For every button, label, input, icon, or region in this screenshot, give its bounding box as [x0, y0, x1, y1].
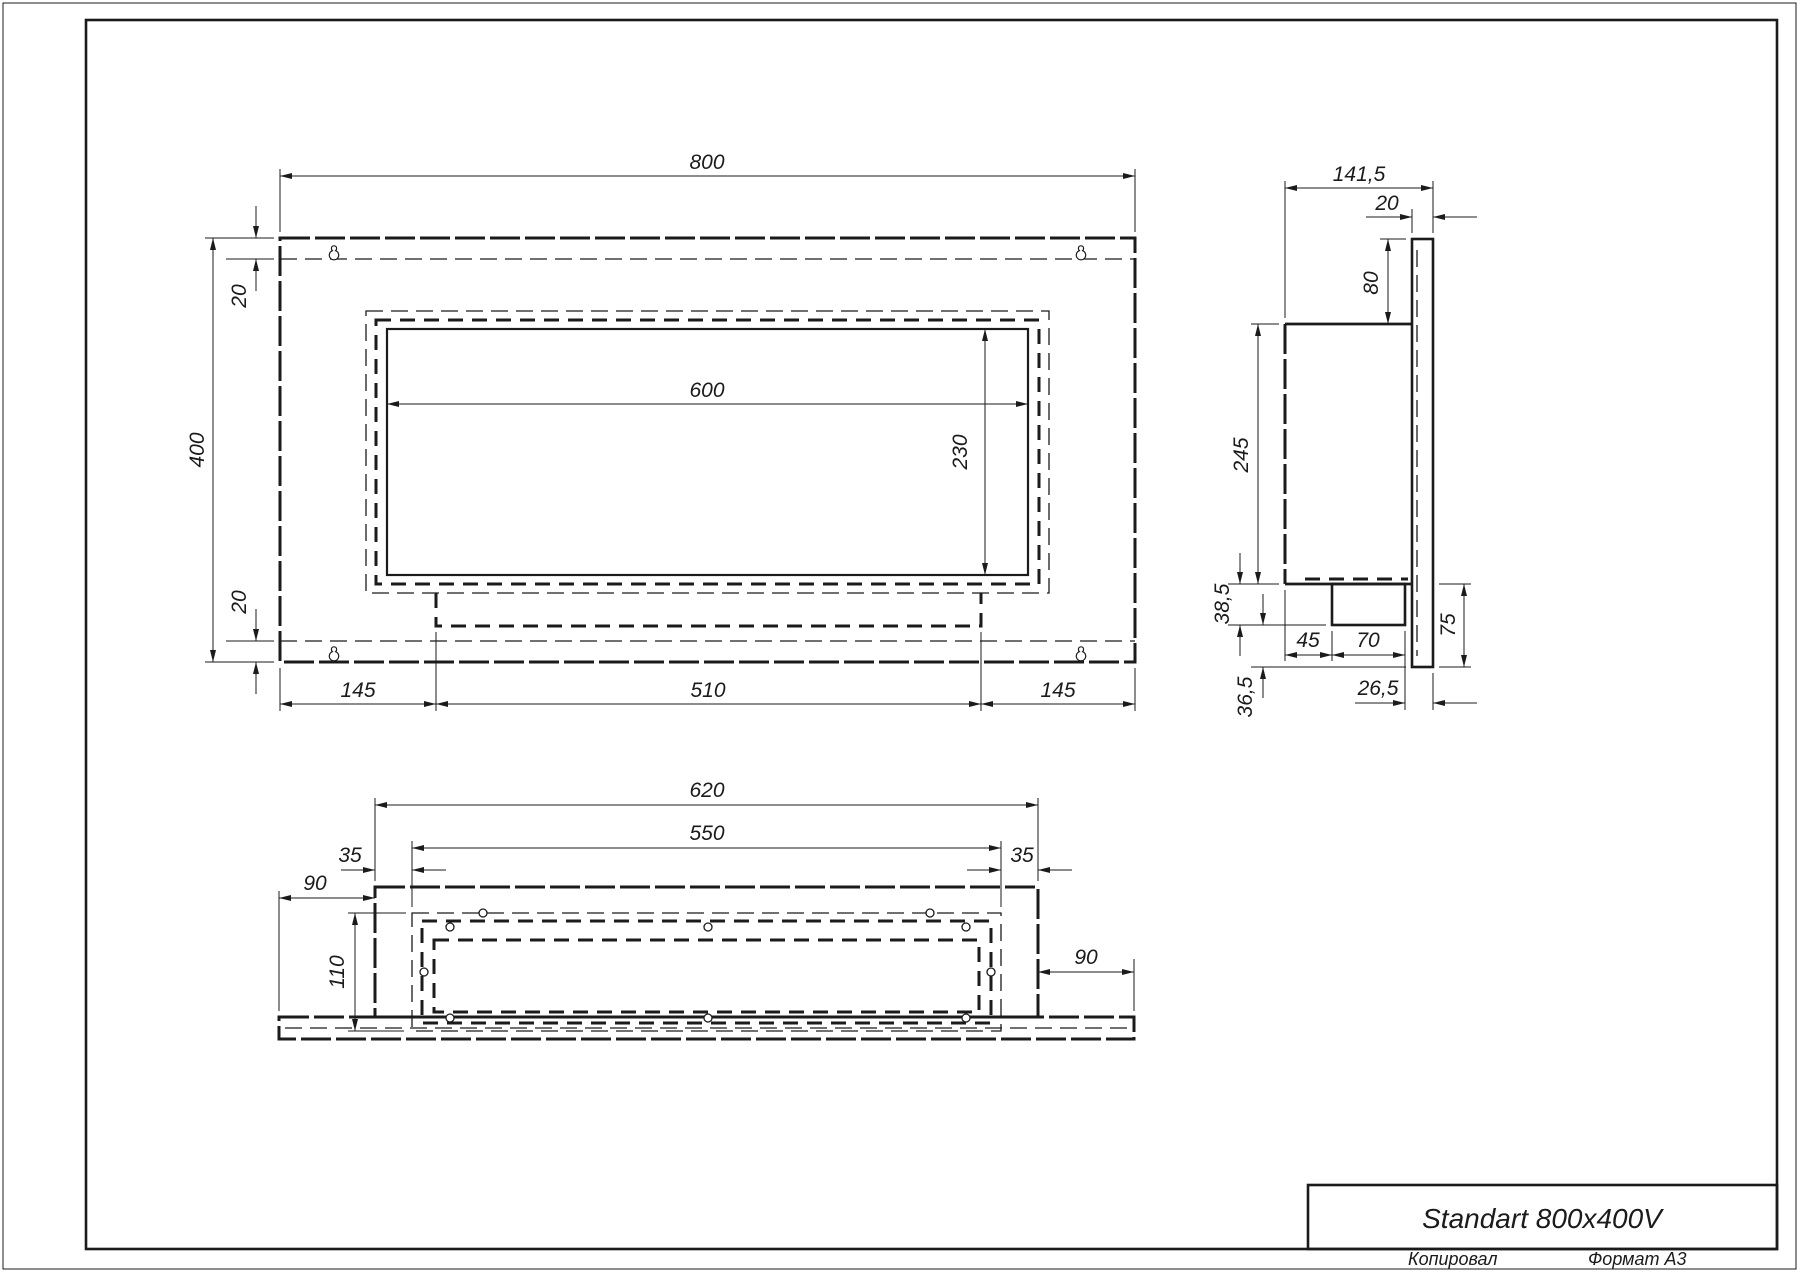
dim-label: 45 [1296, 629, 1320, 652]
dim-label: 35 [1010, 844, 1034, 867]
screw-hole [704, 923, 712, 931]
keyhole-icon [329, 647, 338, 661]
dim-front-opening-height: 230 [949, 329, 985, 575]
dim-side-plate-thickness: 20 [1366, 192, 1477, 233]
front-opening-hidden-frame [366, 311, 1049, 593]
front-opening [387, 329, 1028, 575]
screw-hole [962, 923, 970, 931]
front-burner-hidden [436, 593, 981, 626]
screw-hole [962, 1014, 970, 1022]
keyhole-icon [329, 246, 338, 260]
side-view: 141,5 20 80 245 38,5 36,5 [1211, 163, 1477, 717]
drawing-title: Standart 800x400V [1422, 1203, 1664, 1234]
screw-hole [479, 909, 487, 917]
sheet-footer: Копировал Формат А3 [1408, 1249, 1687, 1269]
dim-bottom-depth: 110 [326, 913, 406, 1031]
bottom-hidden-frame-inner [434, 940, 979, 1012]
screw-hole [446, 1014, 454, 1022]
dim-bottom-opening-width: 550 [412, 822, 1001, 907]
side-back-plate [1412, 239, 1433, 667]
copied-label: Копировал [1408, 1249, 1498, 1269]
title-block: Standart 800x400V [1308, 1185, 1777, 1249]
dim-label: 145 [340, 679, 375, 702]
keyhole-icon [1076, 246, 1085, 260]
dim-bottom-left-flange: 90 [279, 872, 375, 1011]
dim-label: 90 [303, 872, 327, 895]
page-frame [3, 3, 1796, 1269]
dim-front-bottom-margin: 20 [226, 590, 274, 694]
dim-label: 141,5 [1333, 163, 1386, 186]
dim-label: 230 [949, 434, 972, 470]
outer-border [3, 3, 1796, 1269]
dim-front-bottom-segments: 145 510 145 [280, 632, 1135, 711]
dim-label: 26,5 [1357, 677, 1399, 700]
dim-label: 20 [228, 590, 251, 615]
dim-label: 800 [689, 151, 724, 174]
dim-label: 20 [228, 284, 251, 309]
dim-label: 245 [1230, 437, 1253, 473]
technical-drawing-svg: 800 600 230 400 20 20 [0, 0, 1800, 1273]
dim-label: 35 [338, 844, 362, 867]
screw-hole [420, 968, 428, 976]
inner-border [86, 20, 1777, 1249]
dim-label: 400 [186, 432, 209, 467]
dim-front-opening-width: 600 [387, 379, 1028, 404]
front-opening-inner-frame [376, 320, 1039, 584]
front-outline [280, 238, 1135, 662]
dim-label: 90 [1074, 946, 1098, 969]
dim-side-top-offset: 80 [1360, 239, 1406, 324]
keyhole-icon [1076, 647, 1085, 661]
format-label: Формат А3 [1588, 1249, 1687, 1269]
dim-label: 20 [1374, 192, 1399, 215]
dim-label: 75 [1437, 613, 1460, 637]
dim-label: 620 [689, 779, 724, 802]
screw-hole [987, 968, 995, 976]
bottom-box-outline [375, 887, 1038, 1017]
dim-label: 80 [1360, 271, 1383, 295]
bottom-view: 620 550 35 35 90 90 [279, 779, 1134, 1039]
bottom-hidden-frame-mid [422, 921, 991, 1023]
side-burner-box [1332, 584, 1405, 625]
screw-hole [704, 1014, 712, 1022]
drawing-sheet: 800 600 230 400 20 20 [0, 0, 1800, 1273]
dim-label: 70 [1356, 629, 1380, 652]
dim-label: 550 [689, 822, 724, 845]
dim-side-bottom-total: 75 [1437, 584, 1471, 667]
dim-label: 110 [326, 955, 349, 989]
dim-label: 600 [689, 379, 724, 402]
dim-label: 38,5 [1211, 583, 1234, 624]
dim-label: 145 [1040, 679, 1075, 702]
screw-hole [926, 909, 934, 917]
dim-side-back-gap: 26,5 [1355, 673, 1477, 710]
dim-front-width: 800 [280, 151, 1135, 232]
screw-hole [446, 923, 454, 931]
dim-front-top-margin: 20 [226, 206, 274, 309]
dim-label: 36,5 [1234, 676, 1257, 717]
dim-label: 510 [690, 679, 725, 702]
front-view: 800 600 230 400 20 20 [186, 151, 1135, 711]
dim-side-body-height: 245 [1228, 324, 1279, 584]
dim-bottom-right-flange: 90 [1038, 946, 1134, 1011]
